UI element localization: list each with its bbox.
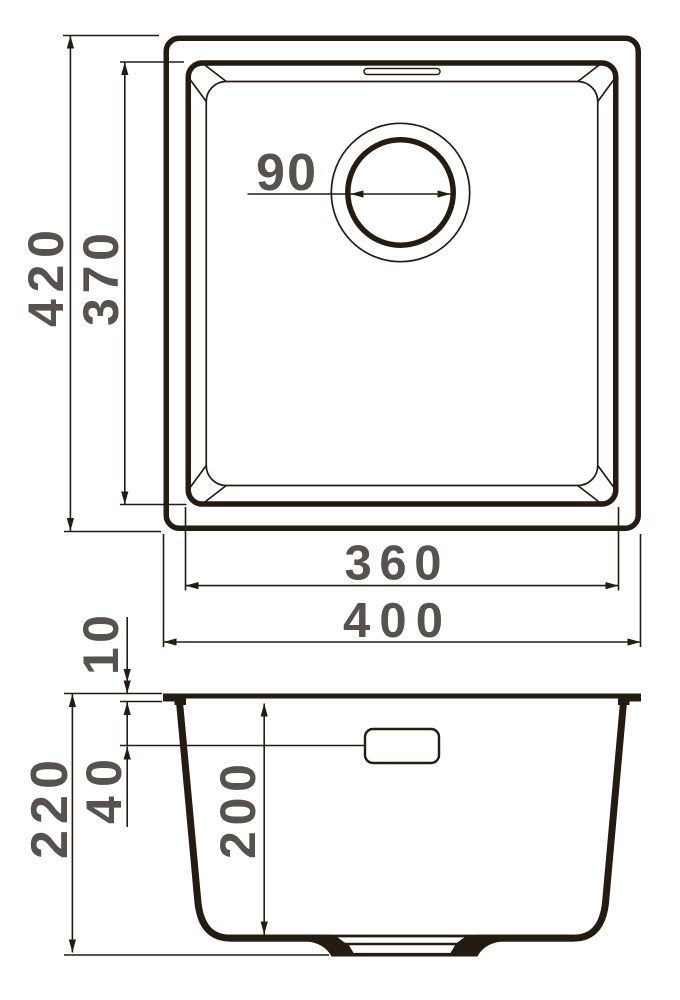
svg-text:360: 360 [345,537,442,591]
svg-text:400: 400 [343,594,443,648]
svg-text:220: 220 [21,760,79,859]
svg-text:420: 420 [18,230,74,327]
svg-text:370: 370 [73,233,129,326]
svg-text:200: 200 [210,764,266,859]
